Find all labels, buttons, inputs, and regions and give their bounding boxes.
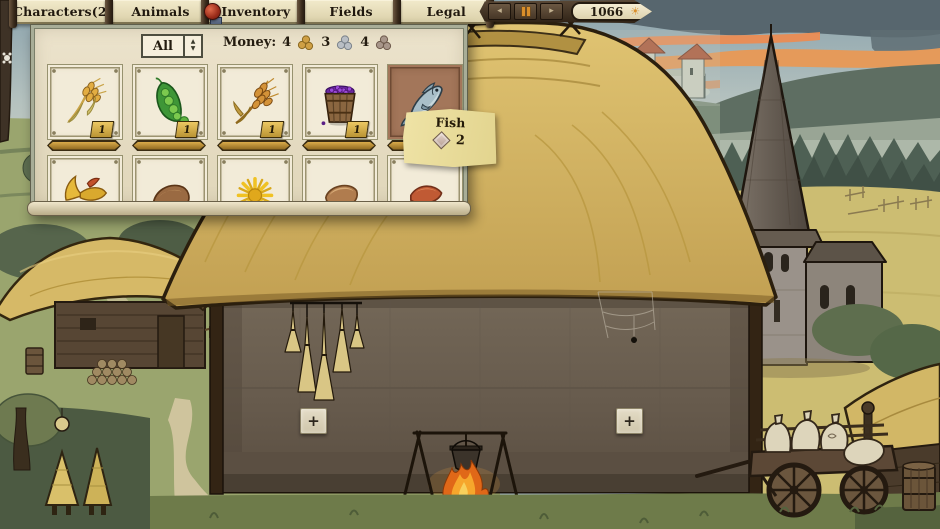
scroll-bottom-edge bbox=[27, 201, 471, 216]
barrel-small bbox=[26, 348, 43, 374]
silver-amount: 3 bbox=[321, 35, 330, 50]
game-screen: + + Characters(2) Animals Inventory Fiel… bbox=[0, 0, 940, 529]
tab-inventory[interactable]: Inventory bbox=[208, 0, 303, 22]
slot-shelf-bar bbox=[302, 140, 376, 151]
inventory-slot-barley[interactable]: 1 bbox=[217, 64, 293, 140]
money-display: Money: 4 3 4 bbox=[223, 35, 393, 50]
chevron-down-icon: ▼ bbox=[191, 46, 196, 53]
item-count-badge: 1 bbox=[175, 121, 199, 138]
filter-spinner[interactable]: ▲ ▼ bbox=[185, 34, 203, 58]
item-count-badge: 1 bbox=[345, 121, 369, 138]
inventory-slot-wheat[interactable]: 1 bbox=[47, 64, 123, 140]
tab-fields[interactable]: Fields bbox=[303, 0, 398, 22]
pause-button[interactable] bbox=[514, 3, 537, 20]
pause-icon bbox=[527, 7, 530, 16]
slot-shelf-bar bbox=[47, 140, 121, 151]
tab-animals[interactable]: Animals bbox=[113, 0, 208, 22]
add-furniture-button-left[interactable]: + bbox=[300, 408, 327, 434]
time-controls: ◂ ▸ 1066 ☀ bbox=[476, 0, 652, 23]
inventory-slot-berry-bucket[interactable]: 1 bbox=[302, 64, 378, 140]
menu-divider-post bbox=[9, 0, 17, 28]
faster-icon: ▸ bbox=[549, 7, 554, 16]
item-count-badge: 1 bbox=[260, 121, 284, 138]
money-label: Money: bbox=[223, 35, 276, 50]
slower-icon: ◂ bbox=[497, 7, 502, 16]
copper-amount: 4 bbox=[360, 35, 369, 50]
item-tooltip: Fish 2 bbox=[403, 109, 499, 169]
inventory-slot-peas[interactable]: 1 bbox=[132, 64, 208, 140]
sun-icon: ☀ bbox=[630, 6, 640, 17]
barrel bbox=[903, 462, 935, 510]
speed-slower-button[interactable]: ◂ bbox=[488, 3, 511, 20]
tooltip-price: 2 bbox=[456, 133, 465, 148]
coin-icon bbox=[432, 131, 450, 149]
gold-coins-icon bbox=[297, 35, 315, 50]
item-count-badge: 1 bbox=[90, 121, 114, 138]
pause-icon bbox=[522, 7, 525, 16]
spider bbox=[631, 337, 637, 343]
slot-shelf-bar bbox=[217, 140, 291, 151]
add-furniture-button-right[interactable]: + bbox=[616, 408, 643, 434]
speed-faster-button[interactable]: ▸ bbox=[540, 3, 563, 20]
tab-legal[interactable]: Legal bbox=[399, 0, 494, 22]
copper-coins-icon bbox=[375, 35, 393, 50]
top-menu-bar: Characters(2) Animals Inventory Fields L… bbox=[13, 0, 494, 24]
notification-seal-icon[interactable] bbox=[204, 3, 221, 20]
slot-shelf-bar bbox=[132, 140, 206, 151]
filter-selected-value: All bbox=[141, 34, 185, 58]
inventory-filter-dropdown[interactable]: All ▲ ▼ bbox=[141, 34, 203, 58]
tooltip-item-name: Fish bbox=[435, 117, 465, 130]
silver-coins-icon bbox=[336, 35, 354, 50]
year-value: 1066 bbox=[590, 5, 623, 19]
tab-characters[interactable]: Characters(2) bbox=[13, 0, 113, 22]
gold-amount: 4 bbox=[282, 35, 291, 50]
